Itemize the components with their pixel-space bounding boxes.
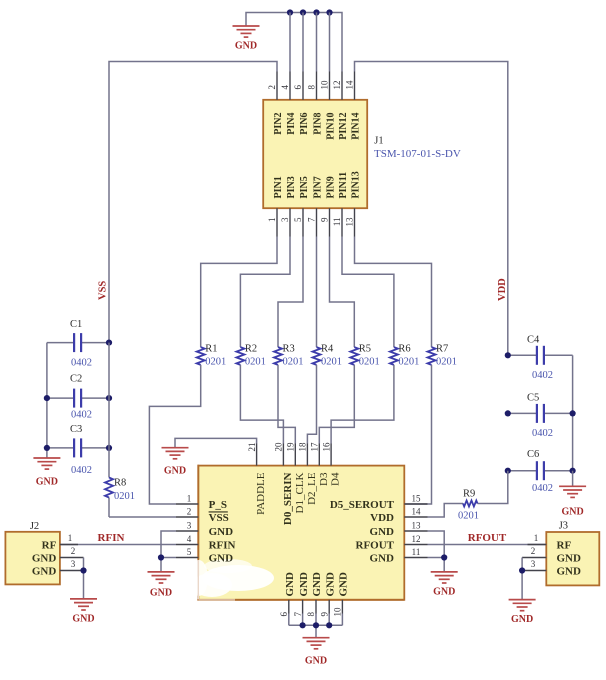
svg-text:12: 12 [332,81,342,90]
svg-text:RFIN: RFIN [209,539,236,551]
svg-text:VSS: VSS [98,281,109,300]
svg-text:15: 15 [412,494,422,504]
svg-text:8: 8 [306,612,316,617]
svg-text:R5: R5 [359,344,371,355]
svg-text:P_S: P_S [209,499,227,511]
svg-text:10: 10 [320,80,330,90]
svg-text:PIN11: PIN11 [338,172,349,199]
svg-text:GND: GND [298,572,310,597]
svg-text:PIN13: PIN13 [351,171,362,198]
svg-text:PIN10: PIN10 [326,113,337,140]
svg-text:R3: R3 [283,344,295,355]
svg-text:RFOUT: RFOUT [468,532,507,544]
svg-text:2: 2 [267,85,277,90]
svg-text:20: 20 [274,442,284,452]
svg-text:R2: R2 [245,344,257,355]
svg-text:GND: GND [72,614,94,625]
svg-text:1: 1 [534,533,539,543]
svg-text:0402: 0402 [71,465,92,476]
svg-text:9: 9 [319,612,329,617]
svg-text:PIN6: PIN6 [299,113,310,135]
svg-text:GND: GND [305,656,327,667]
svg-text:10: 10 [333,607,343,617]
svg-text:3: 3 [187,521,192,531]
svg-text:0402: 0402 [71,358,92,369]
svg-text:R8: R8 [114,478,126,489]
svg-text:2: 2 [187,507,192,517]
svg-text:PIN9: PIN9 [326,176,337,198]
svg-text:0402: 0402 [532,428,553,439]
svg-text:D1_CLK: D1_CLK [294,472,306,513]
svg-text:13: 13 [345,217,355,227]
svg-text:GND: GND [311,572,323,597]
svg-text:GND: GND [561,507,583,518]
svg-text:C6: C6 [527,449,539,460]
svg-text:GND: GND [209,526,234,538]
svg-text:GND: GND [150,588,172,599]
svg-text:PIN12: PIN12 [338,113,349,140]
svg-text:5: 5 [187,547,192,557]
svg-text:RFOUT: RFOUT [356,539,395,551]
svg-text:16: 16 [321,442,331,452]
svg-text:0201: 0201 [436,357,457,368]
svg-text:GND: GND [36,477,58,488]
svg-text:7: 7 [307,217,317,222]
svg-text:18: 18 [298,442,308,452]
svg-text:7: 7 [293,612,303,617]
svg-text:D4: D4 [330,472,342,486]
svg-text:RFIN: RFIN [98,532,125,544]
svg-text:2: 2 [531,546,536,556]
svg-text:2: 2 [71,546,76,556]
svg-text:0402: 0402 [532,370,553,381]
svg-text:3: 3 [531,559,536,569]
svg-text:14: 14 [345,80,355,90]
svg-text:1: 1 [187,494,192,504]
svg-text:19: 19 [286,442,296,452]
svg-text:0201: 0201 [205,357,226,368]
svg-text:0201: 0201 [359,357,380,368]
svg-text:0201: 0201 [321,357,342,368]
svg-text:6: 6 [293,85,303,90]
svg-text:D0_SERIN: D0_SERIN [282,472,294,525]
svg-text:11: 11 [412,547,421,557]
svg-text:PIN2: PIN2 [273,113,284,135]
svg-text:J1: J1 [374,136,383,147]
svg-text:GND: GND [370,552,395,564]
svg-text:D2_LE: D2_LE [306,472,318,505]
svg-text:PIN14: PIN14 [351,113,362,140]
svg-text:GND: GND [557,565,582,577]
svg-text:GND: GND [235,41,257,52]
svg-text:PIN1: PIN1 [273,176,284,198]
svg-text:1: 1 [68,533,73,543]
svg-text:PIN8: PIN8 [313,113,324,135]
svg-text:GND: GND [32,552,57,564]
svg-text:6: 6 [279,612,289,617]
svg-text:0201: 0201 [458,511,479,522]
svg-text:C5: C5 [527,393,539,404]
svg-text:0201: 0201 [283,357,304,368]
svg-text:14: 14 [412,507,422,517]
svg-text:PIN3: PIN3 [286,176,297,198]
svg-text:4: 4 [280,85,290,90]
svg-text:J3: J3 [559,521,568,532]
svg-text:PIN4: PIN4 [286,113,297,135]
svg-text:5: 5 [293,217,303,222]
svg-text:GND: GND [557,552,582,564]
svg-text:VSS: VSS [209,512,229,524]
svg-text:PIN7: PIN7 [313,176,324,198]
svg-text:17: 17 [310,442,320,452]
svg-text:4: 4 [187,534,192,544]
svg-text:VDD: VDD [497,278,508,301]
svg-text:0201: 0201 [114,491,135,502]
svg-text:0201: 0201 [398,357,419,368]
svg-text:GND: GND [209,552,234,564]
svg-text:1: 1 [267,218,277,223]
svg-text:21: 21 [247,443,257,452]
svg-text:GND: GND [511,614,533,625]
svg-text:9: 9 [320,217,330,222]
svg-text:C3: C3 [70,424,82,435]
svg-text:GND: GND [32,565,57,577]
svg-text:PADDLE: PADDLE [255,472,267,515]
svg-text:11: 11 [332,218,342,227]
svg-text:C4: C4 [527,335,540,346]
svg-text:GND: GND [284,572,296,597]
svg-text:GND: GND [433,587,455,598]
svg-text:R6: R6 [398,344,410,355]
svg-text:GND: GND [324,572,336,597]
svg-text:8: 8 [307,85,317,90]
svg-text:GND: GND [338,572,350,597]
svg-text:C2: C2 [70,374,82,385]
svg-text:GND: GND [370,526,395,538]
svg-text:0402: 0402 [71,410,92,421]
svg-text:J2: J2 [30,521,39,532]
svg-text:12: 12 [412,534,421,544]
svg-text:PIN5: PIN5 [299,176,310,198]
svg-text:3: 3 [71,559,76,569]
svg-text:C1: C1 [70,319,82,330]
svg-text:TSM-107-01-S-DV: TSM-107-01-S-DV [374,148,461,160]
svg-text:0201: 0201 [245,357,266,368]
svg-text:R9: R9 [463,489,475,500]
svg-text:R4: R4 [321,344,334,355]
svg-text:RF: RF [557,540,572,552]
svg-text:0402: 0402 [532,483,553,494]
svg-text:3: 3 [280,217,290,222]
svg-text:D3: D3 [318,472,330,486]
svg-text:D5_SEROUT: D5_SEROUT [330,499,395,511]
svg-text:RF: RF [42,540,57,552]
svg-text:VDD: VDD [370,512,394,524]
svg-text:13: 13 [412,521,422,531]
svg-text:R1: R1 [205,344,217,355]
svg-text:R7: R7 [436,344,448,355]
svg-text:GND: GND [164,466,186,477]
